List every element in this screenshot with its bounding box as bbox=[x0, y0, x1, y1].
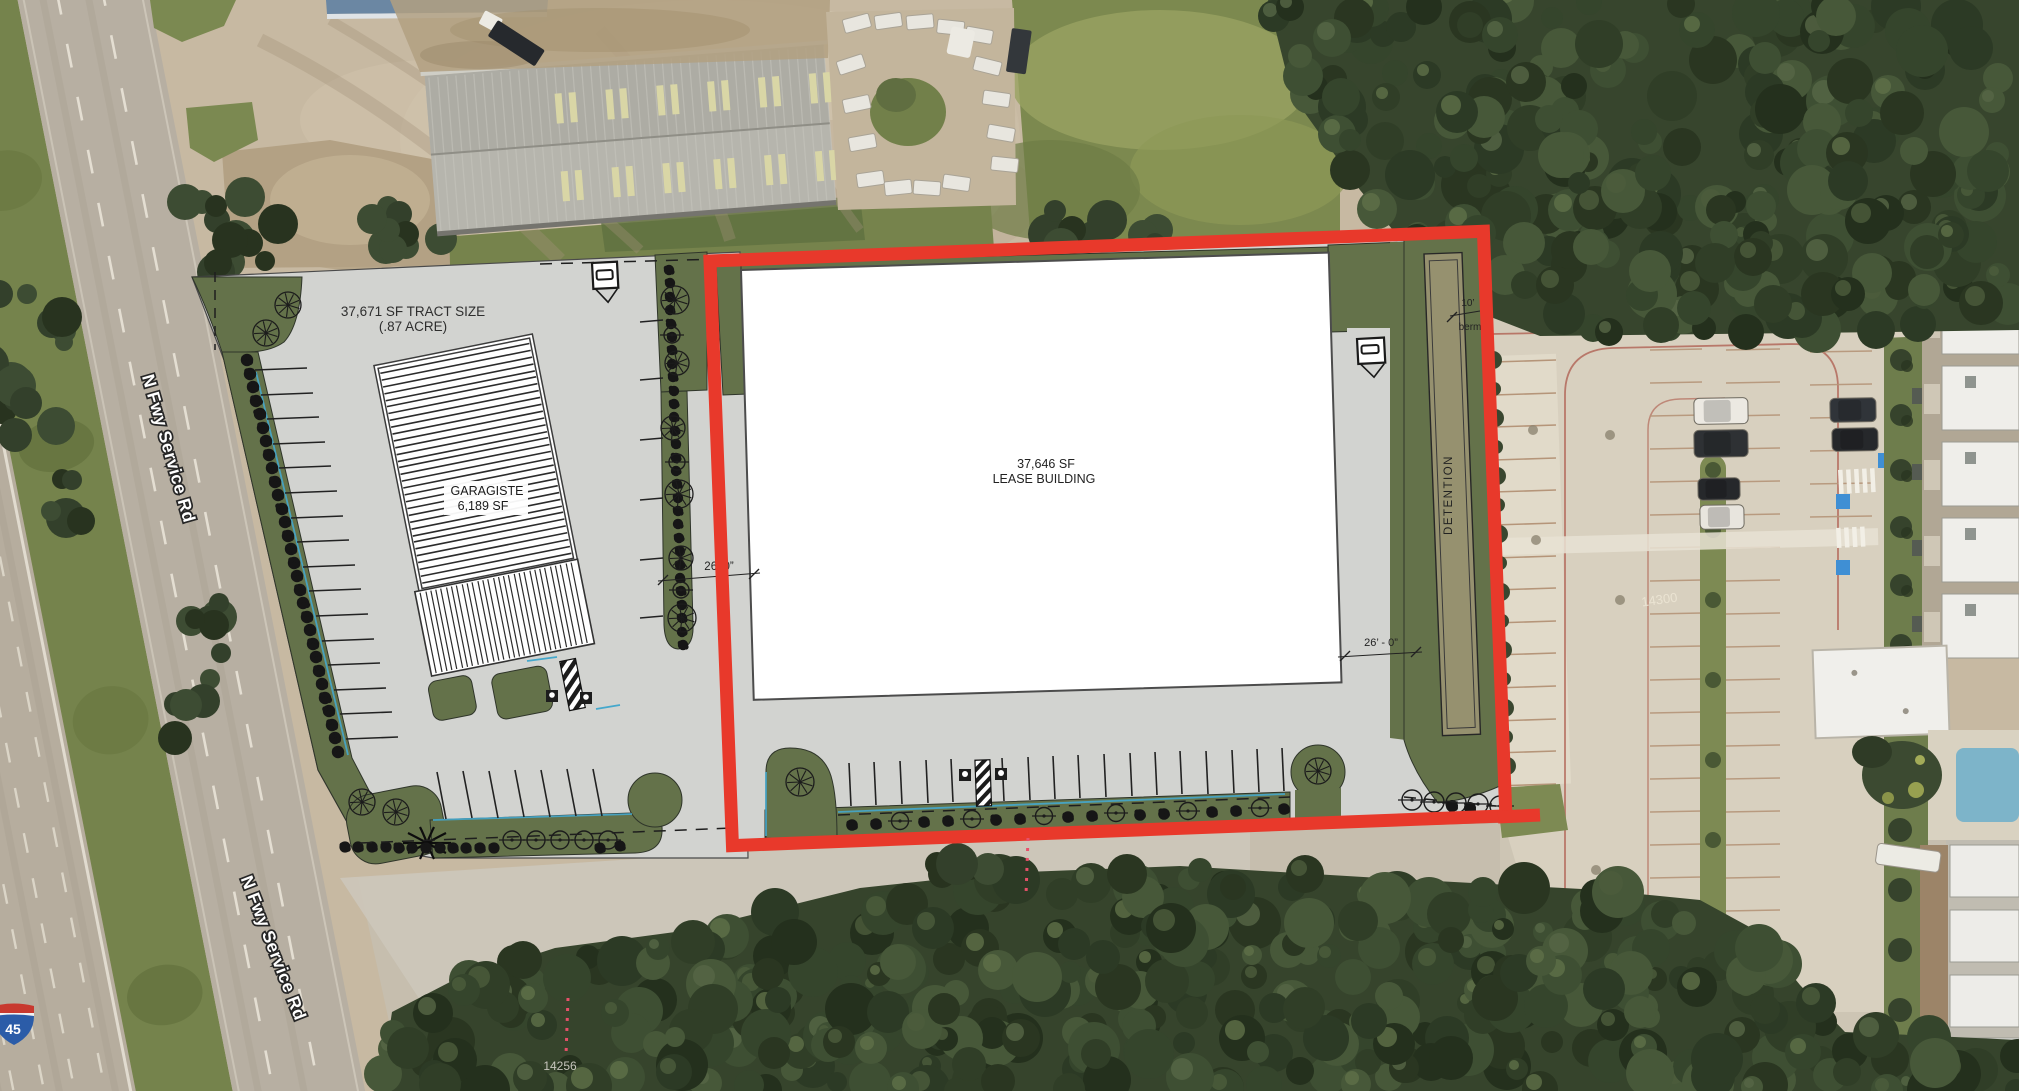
svg-text:berm: berm bbox=[1459, 322, 1482, 333]
svg-text:GARAGISTE: GARAGISTE bbox=[451, 484, 524, 498]
svg-text:LEASE BUILDING: LEASE BUILDING bbox=[993, 472, 1096, 486]
svg-text:45: 45 bbox=[5, 1021, 21, 1037]
svg-text:10’: 10’ bbox=[1461, 298, 1474, 309]
svg-text:(.87 ACRE): (.87 ACRE) bbox=[379, 319, 447, 334]
svg-text:26’ - 0”: 26’ - 0” bbox=[1364, 637, 1398, 649]
svg-text:14256: 14256 bbox=[543, 1059, 577, 1073]
svg-text:6,189 SF: 6,189 SF bbox=[458, 499, 509, 513]
svg-text:37,646 SF: 37,646 SF bbox=[1017, 457, 1075, 471]
svg-text:37,671 SF TRACT SIZE: 37,671 SF TRACT SIZE bbox=[341, 304, 485, 319]
svg-text:DETENTION: DETENTION bbox=[1443, 455, 1455, 535]
